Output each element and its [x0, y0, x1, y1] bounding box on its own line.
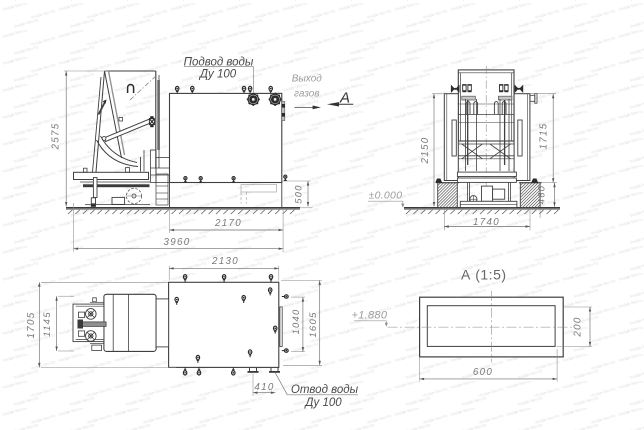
svg-text:+1.880: +1.880 — [352, 310, 388, 322]
svg-text:2575: 2575 — [51, 123, 62, 151]
svg-text:600: 600 — [473, 367, 493, 378]
svg-text:Ду 100: Ду 100 — [303, 397, 342, 409]
svg-text:1605: 1605 — [308, 311, 319, 337]
svg-text:200: 200 — [572, 316, 583, 337]
svg-text:1715: 1715 — [539, 123, 550, 150]
svg-text:2170: 2170 — [214, 218, 242, 229]
svg-text:1145: 1145 — [42, 311, 53, 337]
svg-text:3960: 3960 — [164, 237, 191, 248]
svg-text:1040: 1040 — [291, 309, 301, 335]
svg-text:Ду 100: Ду 100 — [198, 69, 237, 81]
svg-text:Выход: Выход — [292, 73, 322, 84]
svg-text:Отвод воды: Отвод воды — [291, 384, 359, 396]
svg-text:500: 500 — [294, 184, 304, 203]
svg-text:±0.000: ±0.000 — [369, 189, 403, 201]
svg-text:460: 460 — [537, 185, 547, 204]
svg-text:2130: 2130 — [211, 256, 239, 267]
svg-text:газов: газов — [294, 89, 319, 100]
svg-text:1705: 1705 — [26, 312, 37, 339]
svg-text:410: 410 — [254, 382, 274, 393]
svg-text:1740: 1740 — [473, 217, 500, 228]
svg-text:2150: 2150 — [420, 137, 431, 165]
svg-text:А (1:5): А (1:5) — [461, 266, 507, 282]
svg-text:А: А — [339, 90, 350, 107]
